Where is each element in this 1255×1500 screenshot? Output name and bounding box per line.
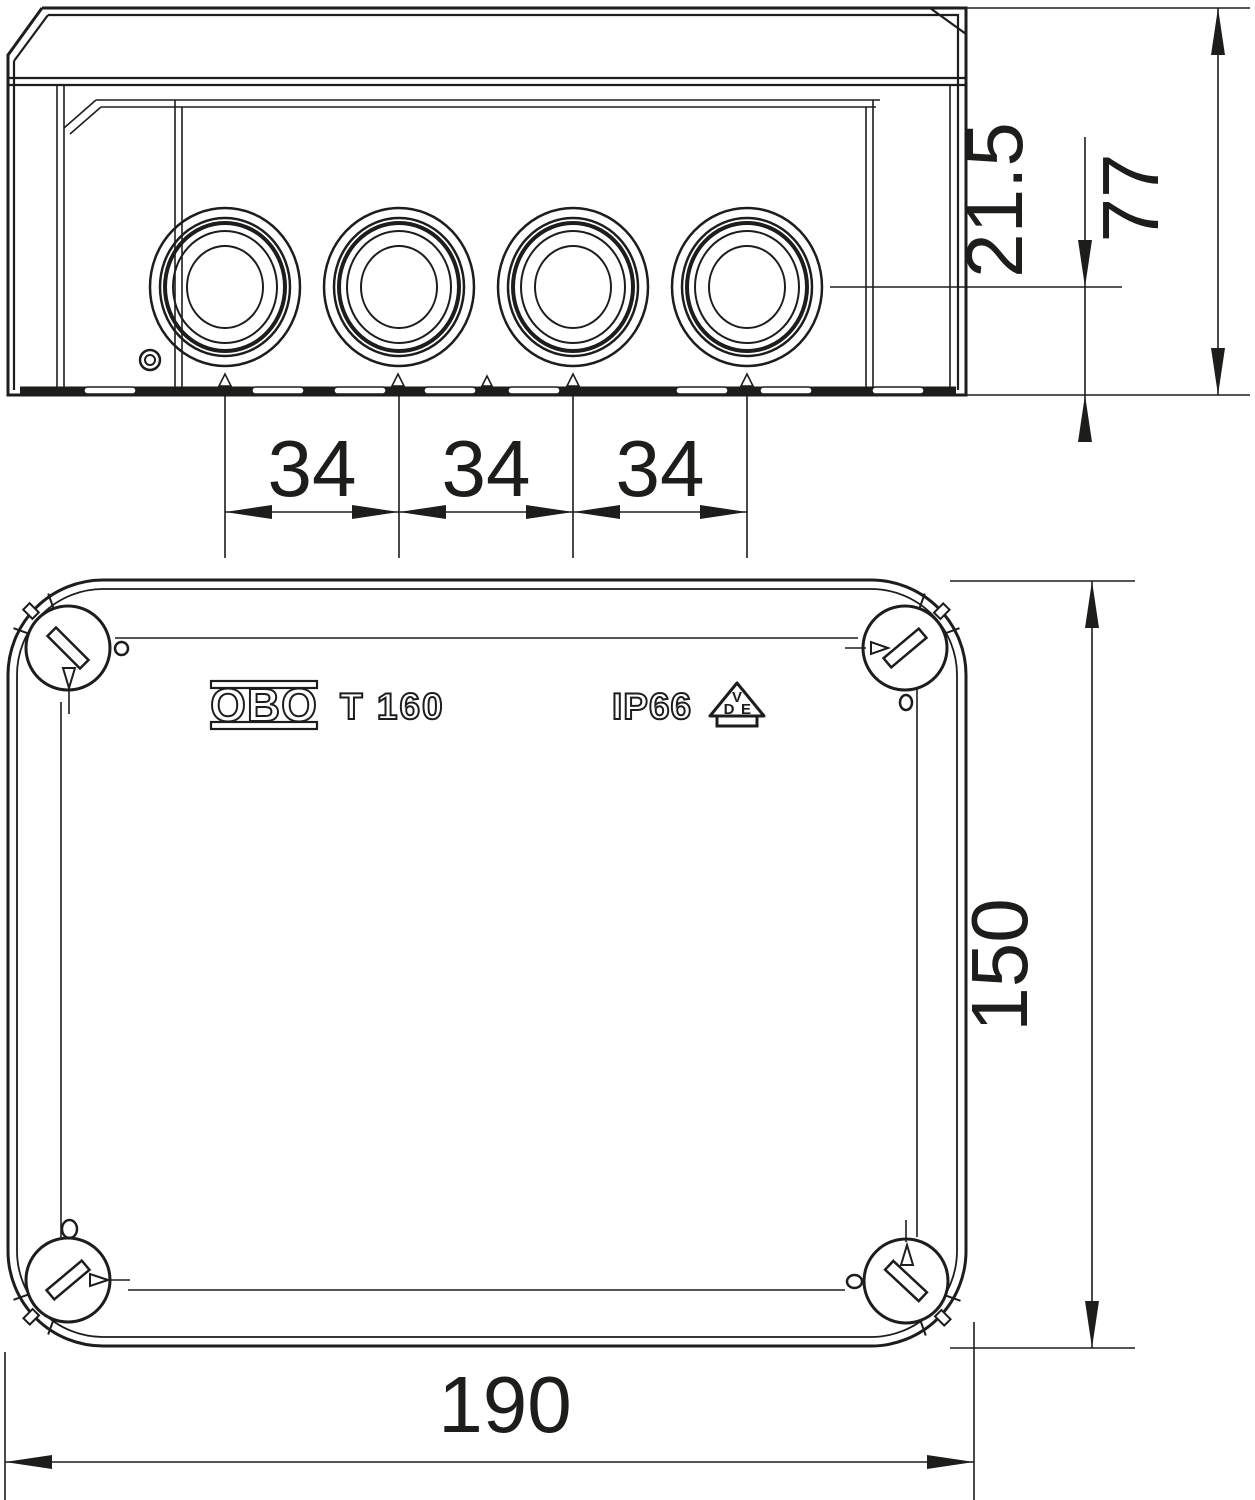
model-text: T 160 [340,686,445,727]
corner-lug [935,1310,951,1326]
cable-entry-2 [324,208,474,366]
vde-logo: V D E [710,683,764,726]
corner-screw-bottom-left [14,1220,131,1335]
small-hole [140,350,160,370]
arrowhead-up [1211,8,1225,55]
arrowhead-up [1085,581,1099,628]
cable-entries [140,208,822,386]
position-mark [900,695,912,710]
obo-logo-bottom-bar [211,722,317,729]
position-mark [115,642,128,655]
arrowhead-left [225,505,272,519]
arrowhead-down [1085,1301,1099,1348]
vde-letter-d: D [724,701,735,718]
corner-screw-top-right [845,594,960,711]
arrowhead [526,505,573,519]
arrowhead-left [5,1455,52,1469]
entry-center-marks [219,374,753,386]
dim-label-34-2: 34 [442,424,531,513]
dim-label-150: 150 [955,898,1044,1031]
top-view-outline [8,580,966,1346]
obo-logo: OBO [210,679,318,731]
corner-screw-bottom-right [847,1220,961,1336]
cable-entry-4 [672,208,822,366]
dim-label-77: 77 [1086,154,1175,243]
dim-190-group: 190 [5,1322,974,1500]
dim-150-group: 150 [950,581,1135,1348]
corner-lug [23,1309,39,1325]
dim-label-190: 190 [438,1360,571,1449]
arrowhead [573,505,620,519]
side-view: 34 34 34 21.5 77 [8,8,1250,558]
arrowhead-down [1078,240,1092,287]
arrowhead-up [1078,395,1092,442]
dim-label-34-1: 34 [268,424,357,513]
rating-text: IP66 [612,686,692,727]
position-mark [62,1220,77,1238]
position-mark [847,1275,862,1288]
dim-label-21-5: 21.5 [950,122,1039,278]
corner-screw-top-left [14,594,129,715]
cable-entry-3 [498,208,648,366]
dim-34-group: 34 34 34 [225,390,747,558]
arrowhead-right [700,505,747,519]
vde-letter-e: E [741,701,751,718]
dimension-drawing-canvas: 34 34 34 21.5 77 [0,0,1255,1500]
top-view: OBO T 160 IP66 V D E 150 [5,580,1135,1500]
cable-entry-1 [150,208,300,366]
arrowhead [399,505,446,519]
side-view-outline [8,8,966,395]
technical-drawing: 34 34 34 21.5 77 [0,0,1255,1500]
arrowhead-right [927,1455,974,1469]
arrowhead-down [1211,348,1225,395]
dim-label-34-3: 34 [616,424,705,513]
arrowhead [352,505,399,519]
